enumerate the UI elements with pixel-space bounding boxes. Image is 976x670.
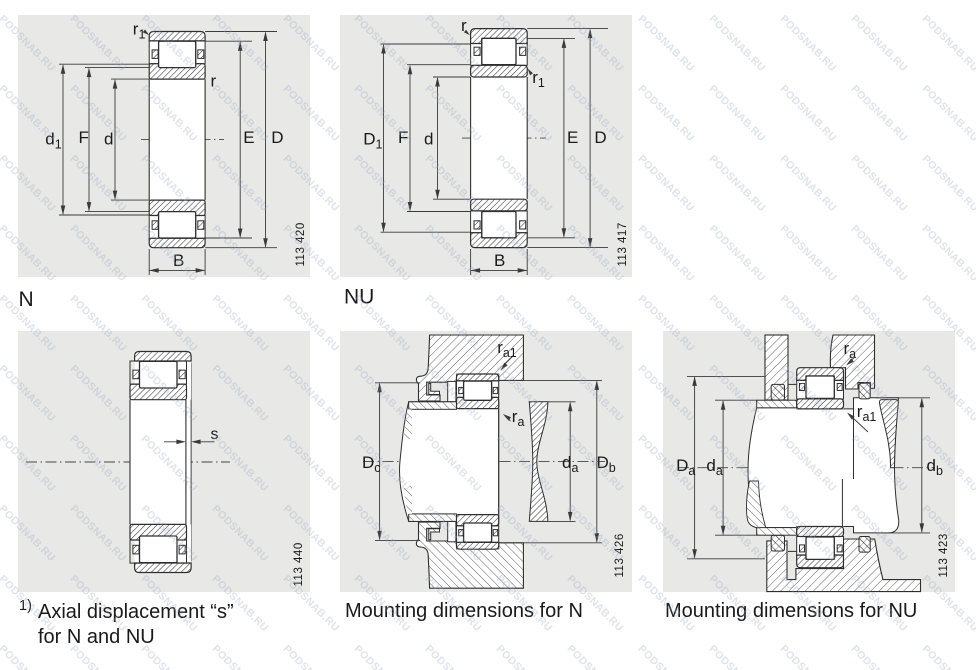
svg-text:PODSNAB.RU: PODSNAB.RU [849, 223, 910, 284]
svg-text:PODSNAB.RU: PODSNAB.RU [636, 0, 697, 4]
svg-text:PODSNAB.RU: PODSNAB.RU [707, 0, 768, 4]
svg-text:PODSNAB.RU: PODSNAB.RU [210, 0, 271, 4]
svg-text:PODSNAB.RU: PODSNAB.RU [210, 643, 271, 670]
svg-text:PODSNAB.RU: PODSNAB.RU [68, 0, 129, 4]
svg-text:PODSNAB.RU: PODSNAB.RU [920, 0, 976, 4]
svg-text:PODSNAB.RU: PODSNAB.RU [565, 0, 626, 4]
svg-text:PODSNAB.RU: PODSNAB.RU [636, 13, 697, 74]
svg-text:d: d [424, 130, 433, 149]
svg-text:PODSNAB.RU: PODSNAB.RU [920, 153, 976, 214]
svg-text:D: D [271, 128, 283, 147]
svg-text:PODSNAB.RU: PODSNAB.RU [281, 573, 342, 634]
svg-text:PODSNAB.RU: PODSNAB.RU [707, 83, 768, 144]
svg-text:PODSNAB.RU: PODSNAB.RU [920, 83, 976, 144]
svg-text:PODSNAB.RU: PODSNAB.RU [423, 643, 484, 670]
svg-text:PODSNAB.RU: PODSNAB.RU [423, 0, 484, 4]
svg-text:PODSNAB.RU: PODSNAB.RU [849, 83, 910, 144]
svg-text:F: F [79, 128, 89, 147]
svg-text:PODSNAB.RU: PODSNAB.RU [139, 0, 200, 4]
svg-text:PODSNAB.RU: PODSNAB.RU [707, 153, 768, 214]
svg-text:PODSNAB.RU: PODSNAB.RU [636, 83, 697, 144]
svg-text:PODSNAB.RU: PODSNAB.RU [281, 0, 342, 4]
svg-text:PODSNAB.RU: PODSNAB.RU [920, 223, 976, 284]
svg-text:PODSNAB.RU: PODSNAB.RU [778, 13, 839, 74]
svg-text:for N and NU: for N and NU [38, 626, 155, 648]
svg-text:PODSNAB.RU: PODSNAB.RU [707, 223, 768, 284]
svg-text:113 417: 113 417 [617, 222, 629, 266]
svg-text:PODSNAB.RU: PODSNAB.RU [849, 153, 910, 214]
svg-text:PODSNAB.RU: PODSNAB.RU [636, 223, 697, 284]
svg-text:PODSNAB.RU: PODSNAB.RU [778, 153, 839, 214]
svg-text:PODSNAB.RU: PODSNAB.RU [139, 643, 200, 670]
svg-text:PODSNAB.RU: PODSNAB.RU [778, 0, 839, 4]
svg-text:PODSNAB.RU: PODSNAB.RU [565, 643, 626, 670]
svg-text:PODSNAB.RU: PODSNAB.RU [494, 643, 555, 670]
svg-text:PODSNAB.RU: PODSNAB.RU [778, 643, 839, 670]
svg-text:Axial displacement “s”: Axial displacement “s” [38, 601, 234, 623]
svg-text:PODSNAB.RU: PODSNAB.RU [0, 0, 58, 4]
svg-text:PODSNAB.RU: PODSNAB.RU [849, 0, 910, 4]
svg-text:PODSNAB.RU: PODSNAB.RU [494, 0, 555, 4]
svg-text:PODSNAB.RU: PODSNAB.RU [778, 223, 839, 284]
svg-text:PODSNAB.RU: PODSNAB.RU [352, 0, 413, 4]
svg-text:PODSNAB.RU: PODSNAB.RU [281, 643, 342, 670]
svg-text:PODSNAB.RU: PODSNAB.RU [636, 643, 697, 670]
svg-text:PODSNAB.RU: PODSNAB.RU [707, 643, 768, 670]
svg-text:E: E [567, 128, 578, 147]
svg-text:PODSNAB.RU: PODSNAB.RU [707, 13, 768, 74]
svg-text:B: B [494, 251, 505, 270]
svg-text:PODSNAB.RU: PODSNAB.RU [849, 13, 910, 74]
svg-text:PODSNAB.RU: PODSNAB.RU [920, 13, 976, 74]
svg-text:PODSNAB.RU: PODSNAB.RU [352, 643, 413, 670]
svg-text:PODSNAB.RU: PODSNAB.RU [849, 643, 910, 670]
svg-text:PODSNAB.RU: PODSNAB.RU [636, 153, 697, 214]
svg-text:PODSNAB.RU: PODSNAB.RU [920, 643, 976, 670]
svg-text:PODSNAB.RU: PODSNAB.RU [778, 83, 839, 144]
